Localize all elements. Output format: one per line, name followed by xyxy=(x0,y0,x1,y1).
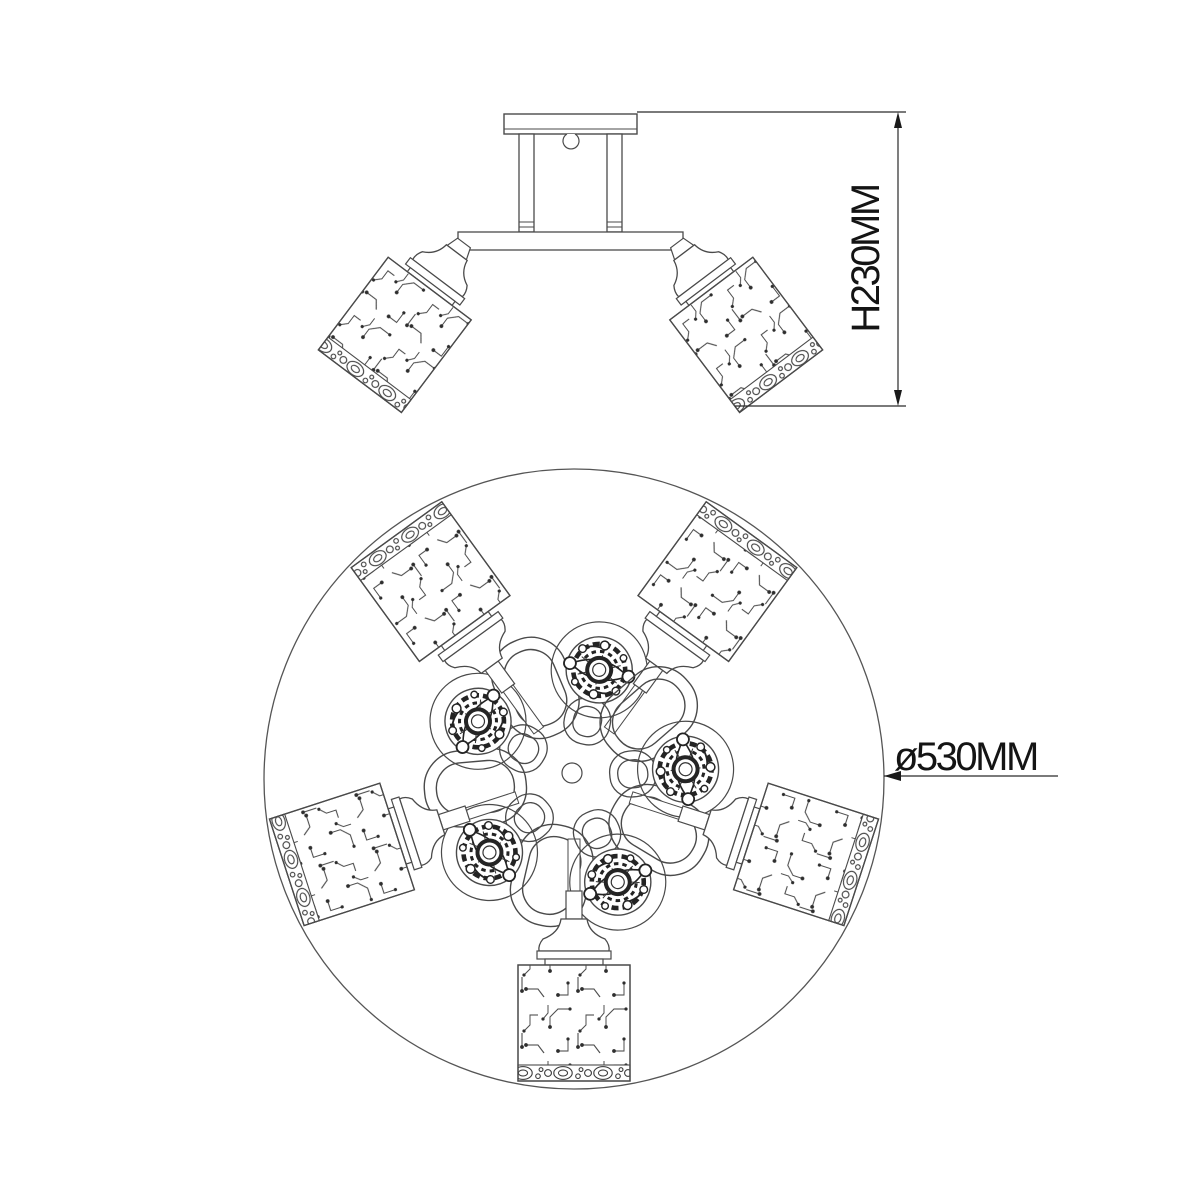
dimension-arrow-up-icon xyxy=(894,112,902,128)
plan-view xyxy=(264,448,907,1089)
technical-drawing-page: H230MM ø530MM xyxy=(0,0,1200,1199)
ceiling-mount-plate xyxy=(504,114,637,134)
chandelier-technical-drawing: H230MM ø530MM xyxy=(0,0,1200,1199)
height-dimension-label: H230MM xyxy=(844,185,888,332)
diameter-dimension-label: ø530MM xyxy=(894,735,1037,779)
support-bar xyxy=(458,232,683,250)
side-elevation-view xyxy=(318,114,822,412)
dimension-arrow-down-icon xyxy=(894,390,902,406)
center-hub xyxy=(562,763,582,783)
canopy-screw xyxy=(563,134,579,149)
